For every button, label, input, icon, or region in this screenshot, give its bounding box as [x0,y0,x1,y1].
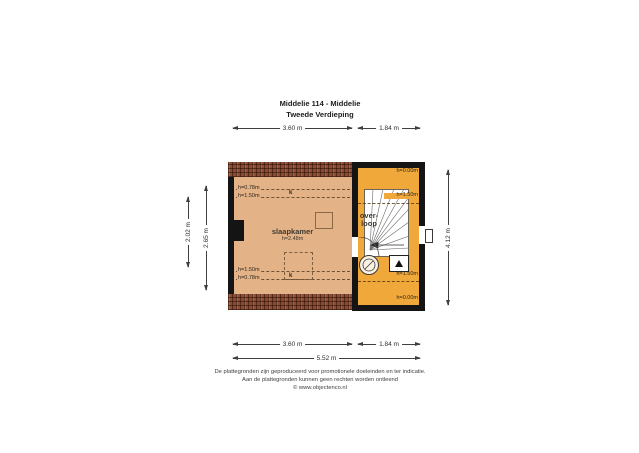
arrow-right-icon [347,342,353,346]
arrow-up-icon [446,169,450,175]
page-subtitle: Tweede Verdieping [96,111,544,119]
arrow-down-icon [204,285,208,291]
dim-top-landing-label: 1.84 m [376,126,402,133]
brick-wall-bottom [228,294,352,310]
window-marker [425,229,433,243]
dim-left-inner-label: 2.02 m [186,219,193,245]
arrow-right-icon [415,342,421,346]
room-label-slaapkamer: slaapkamer h=2.48m [255,228,330,243]
dim-bottom-bedroom: 3.60 m [233,344,352,345]
height-label: h=1.50m [384,193,419,199]
room-ceiling-height: h=2.48m [255,236,330,244]
dim-top-landing: 1.84 m [358,128,420,129]
arrow-right-icon [347,126,353,130]
dim-left-outer: 2.65 m [206,186,207,290]
height-label: h=1.50m [237,268,261,274]
height-label: h=0.78m [237,186,261,192]
arrow-left-icon [232,342,238,346]
arrow-left-icon [357,342,363,346]
dim-bottom-bedroom-label: 3.60 m [280,342,306,349]
disclaimer-line-2: Aan de plattegronden kunnen geen rechten… [96,378,544,384]
dim-bottom-landing-label: 1.84 m [376,342,402,349]
arrow-down-icon [446,300,450,306]
boiler-triangle-icon [395,260,403,267]
room-label-overloop: over- loop [355,212,383,227]
dim-top-bedroom-label: 3.60 m [280,126,306,133]
height-label: h=0.00m [384,169,419,175]
height-line-150-landing-top [358,203,419,204]
floorplan-page: Middelie 114 - Middelie Tweede Verdiepin… [0,0,639,453]
ventilation-fan-icon [358,254,380,276]
height-label: h=1.50m [237,194,261,200]
arrow-up-icon [204,185,208,191]
arrow-down-icon [186,262,190,268]
arrow-left-icon [232,356,238,360]
dim-right-total: 4.12 m [448,170,449,305]
room-name: loop [355,220,383,228]
height-label: h=1.50m [384,272,419,278]
boiler-icon [389,255,409,272]
arrow-right-icon [415,126,421,130]
height-label: h=0.78m [237,276,261,282]
skylight-outline [315,212,333,229]
disclaimer-line-1: De plattegronden zijn geproduceerd voor … [96,370,544,376]
dim-bottom-total-label: 5.52 m [314,356,340,363]
knee-wall-label: k [287,190,294,196]
arrow-left-icon [357,126,363,130]
dashed-outline [284,252,313,280]
dim-bottom-landing: 1.84 m [358,344,420,345]
dim-right-total-label: 4.12 m [446,225,453,251]
arrow-left-icon [232,126,238,130]
copyright: © www.objectenco.nl [96,386,544,392]
page-title: Middelie 114 - Middelie [96,100,544,108]
dim-top-bedroom: 3.60 m [233,128,352,129]
dim-left-outer-label: 2.65 m [204,225,211,251]
dim-bottom-total: 5.52 m [233,358,420,359]
room-name: slaapkamer [255,228,330,236]
arrow-right-icon [415,356,421,360]
arrow-up-icon [186,196,190,202]
brick-wall-top [228,162,352,177]
height-label: h=0.00m [384,296,419,302]
wall-landing-bottom [352,305,425,311]
dim-left-inner: 2.02 m [188,197,189,267]
height-line-150-landing-bottom [358,281,419,282]
chimney [228,220,244,241]
